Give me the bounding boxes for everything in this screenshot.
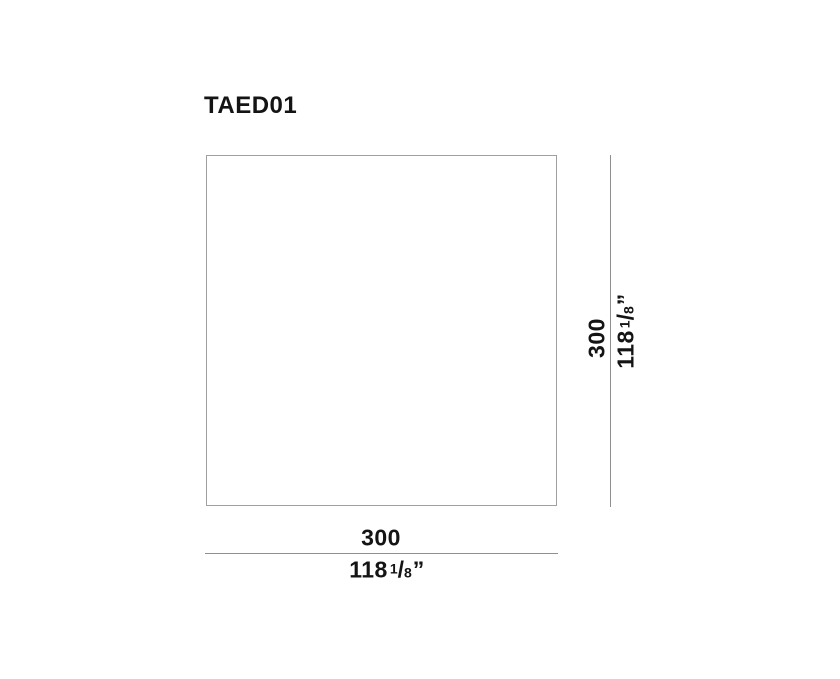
height-fraction-denominator: 8 [621, 306, 637, 314]
height-imperial-value: 1181/8” [615, 293, 638, 369]
width-metric-value: 300 [361, 527, 401, 550]
height-imperial-whole: 118 [613, 330, 639, 369]
product-code-title: TAED01 [204, 94, 297, 118]
width-fraction-denominator: 8 [404, 565, 412, 581]
width-inch-mark: ” [413, 557, 425, 583]
width-imperial-whole: 118 [349, 557, 388, 583]
width-fraction-slash: / [398, 557, 404, 583]
height-metric-value: 300 [586, 318, 609, 358]
width-imperial-value: 1181/8” [349, 559, 425, 582]
panel-outline [206, 155, 557, 506]
technical-drawing-sheet: TAED01 300 1181/8” 300 1181/8” [0, 0, 840, 679]
width-fraction-numerator: 1 [390, 560, 398, 576]
width-dimension-line [205, 553, 558, 554]
height-dimension-line [610, 155, 611, 507]
height-fraction-numerator: 1 [616, 320, 632, 328]
height-inch-mark: ” [613, 293, 639, 305]
height-fraction-slash: / [613, 314, 639, 320]
